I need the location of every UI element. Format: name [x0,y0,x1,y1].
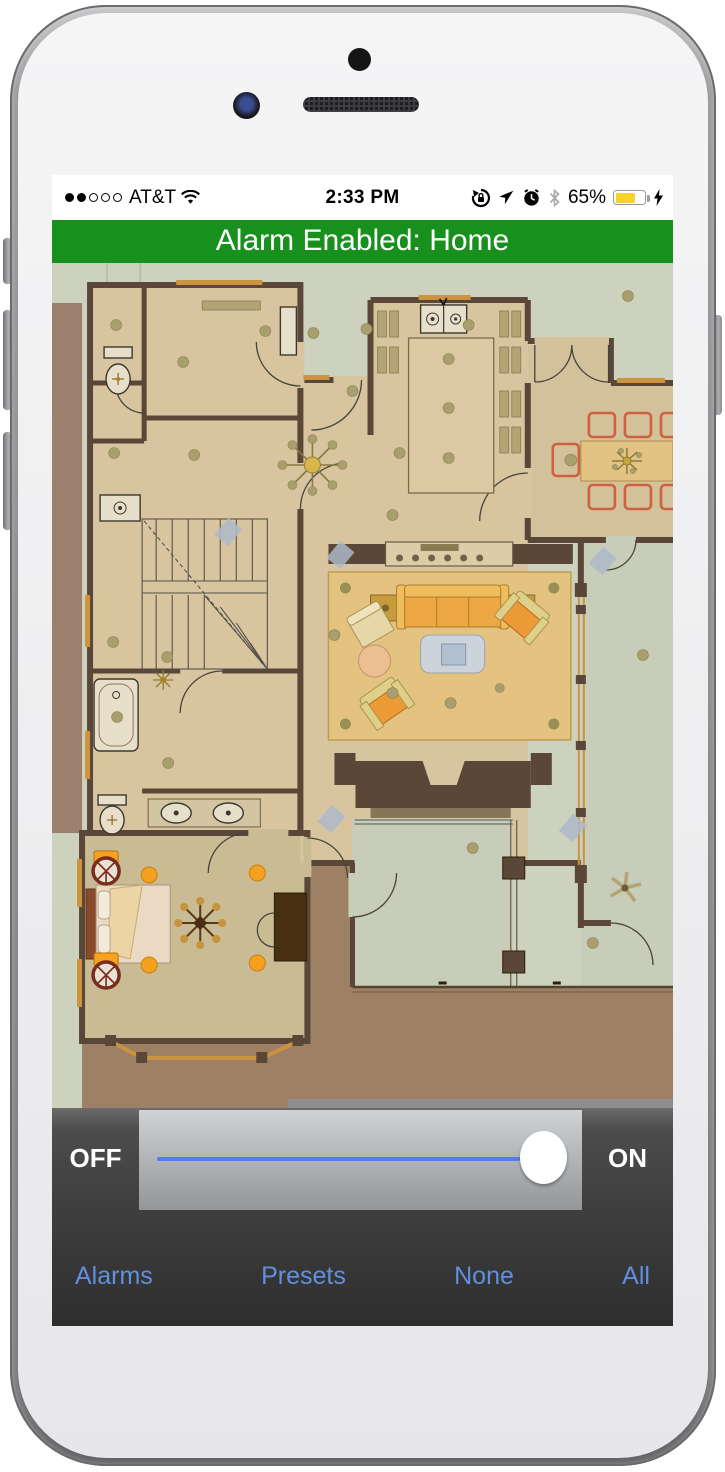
all-link[interactable]: All [622,1262,650,1291]
foyer-chandelier[interactable] [278,435,347,496]
signal-dot [65,193,74,202]
alarm-clock-icon [522,188,541,207]
staircase [142,519,267,669]
location-icon [498,189,515,206]
signal-dot [101,193,110,202]
slider-thumb[interactable] [520,1131,567,1184]
floorplan-image[interactable] [52,263,673,1108]
battery-icon [613,190,646,205]
bottom-toolbar: Alarms Presets None All [52,1248,673,1304]
status-bar: AT&T 2:33 PM [52,175,673,220]
signal-dot [113,193,122,202]
media-console [328,542,572,566]
app-screen: AT&T 2:33 PM [52,175,673,1326]
screenshot-canvas: AT&T 2:33 PM [0,0,725,1472]
clock-label: 2:33 PM [326,187,400,209]
off-label: OFF [52,1108,139,1209]
rotation-lock-icon [471,188,491,208]
signal-dot [89,193,98,202]
none-link[interactable]: None [454,1262,514,1291]
carrier-label: AT&T [129,187,176,209]
proximity-sensor-icon [348,48,371,71]
presets-link[interactable]: Presets [261,1262,346,1291]
signal-strength-icon [65,193,122,202]
slider-track[interactable] [157,1157,520,1161]
bath-light[interactable] [153,670,173,690]
wifi-icon [180,190,201,206]
light-controls: OFF ON Alarms Presets None All [52,1108,673,1326]
signal-dot [77,193,86,202]
bluetooth-icon [548,189,561,207]
alarms-link[interactable]: Alarms [75,1262,153,1291]
on-label: ON [582,1108,673,1209]
front-camera-icon [233,92,260,119]
floorplan-side-patio [52,303,82,833]
alarm-status-banner[interactable]: Alarm Enabled: Home [52,220,673,263]
charging-bolt-icon [653,189,664,206]
battery-percent-label: 65% [568,187,606,209]
earpiece-speaker-icon [303,97,419,112]
dimmer-slider[interactable] [139,1110,582,1210]
